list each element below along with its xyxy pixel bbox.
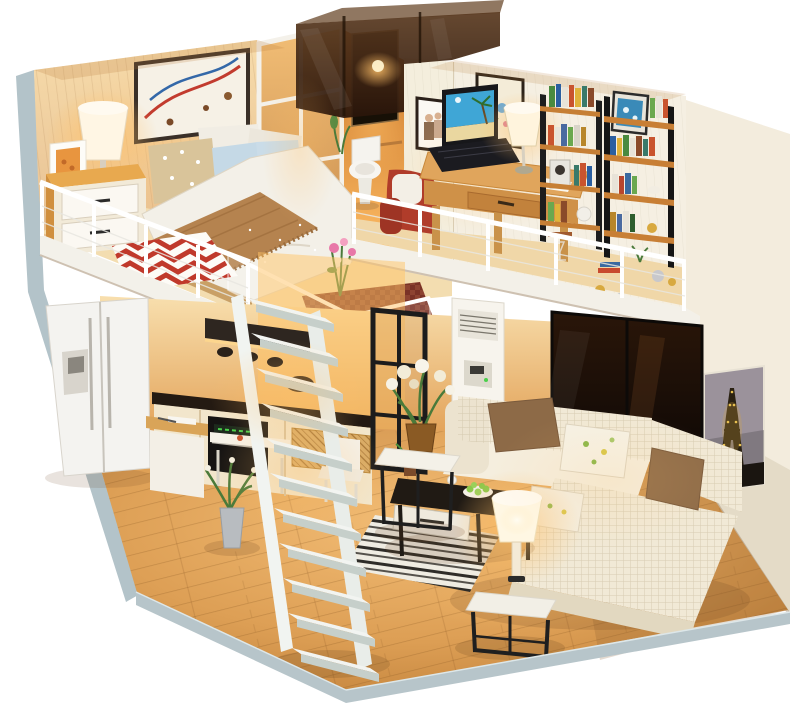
hanging-pot — [217, 347, 233, 357]
seashell — [648, 186, 660, 194]
prep-table — [146, 416, 208, 498]
lamp-stem — [512, 542, 521, 576]
gold-ball — [647, 223, 657, 233]
flower-vase — [406, 424, 436, 452]
dollhouse-photo — [0, 0, 800, 721]
art-deer — [167, 119, 174, 126]
fridge-handle — [90, 318, 92, 430]
fridge — [46, 298, 150, 476]
leaning-map-frame — [612, 92, 648, 134]
